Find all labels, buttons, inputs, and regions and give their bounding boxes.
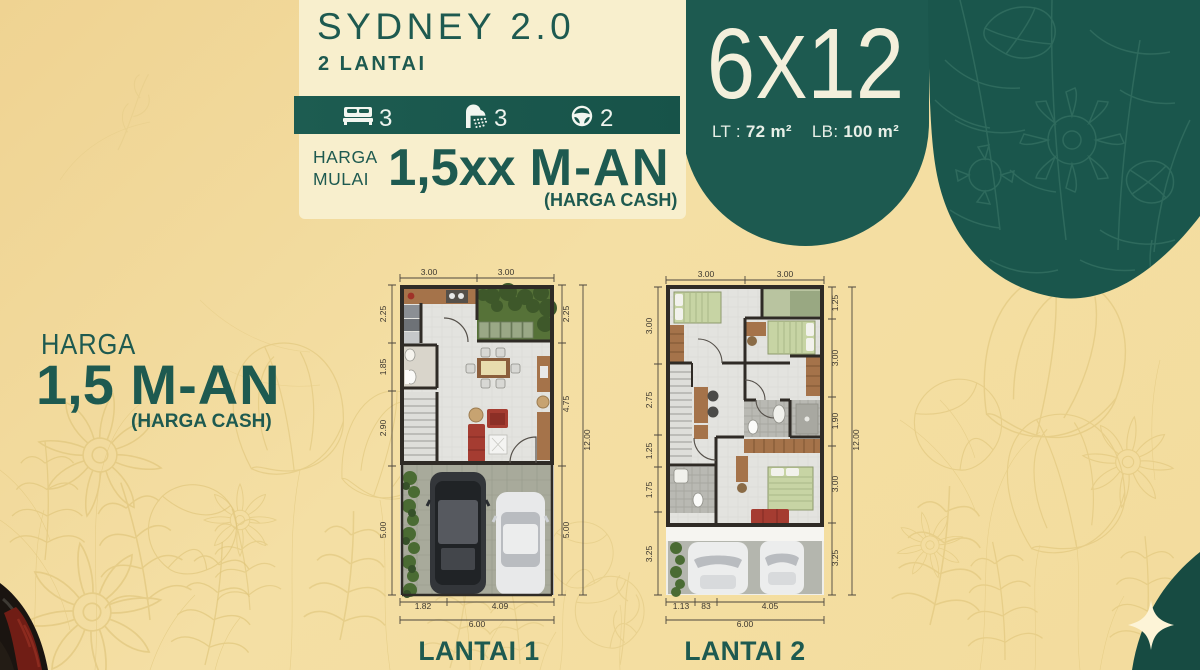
svg-text:83: 83 [701, 601, 711, 611]
svg-text:2.25: 2.25 [561, 305, 571, 322]
svg-text:5.00: 5.00 [380, 521, 388, 538]
svg-text:1.90: 1.90 [830, 412, 840, 429]
svg-text:4.09: 4.09 [492, 601, 509, 611]
svg-text:1.85: 1.85 [380, 358, 388, 375]
svg-text:2.90: 2.90 [380, 419, 388, 436]
svg-text:1.25: 1.25 [830, 294, 840, 311]
svg-text:4.05: 4.05 [762, 601, 779, 611]
svg-text:4.75: 4.75 [561, 395, 571, 412]
svg-text:1.25: 1.25 [645, 442, 654, 459]
svg-text:3.00: 3.00 [698, 269, 715, 279]
svg-text:6.00: 6.00 [737, 619, 754, 629]
svg-text:3.00: 3.00 [421, 267, 438, 277]
svg-text:3.25: 3.25 [830, 549, 840, 566]
svg-text:5.00: 5.00 [561, 521, 571, 538]
svg-text:1.82: 1.82 [415, 601, 432, 611]
svg-text:6.00: 6.00 [469, 619, 486, 629]
svg-text:1.13: 1.13 [673, 601, 690, 611]
svg-text:3.00: 3.00 [498, 267, 515, 277]
svg-text:3.00: 3.00 [830, 475, 840, 492]
svg-text:3.00: 3.00 [777, 269, 794, 279]
svg-text:3.25: 3.25 [645, 545, 654, 562]
svg-text:2.25: 2.25 [380, 305, 388, 322]
svg-text:12.00: 12.00 [582, 429, 592, 451]
svg-text:2.75: 2.75 [645, 391, 654, 408]
svg-text:3.00: 3.00 [830, 349, 840, 366]
svg-text:1.75: 1.75 [645, 481, 654, 498]
svg-text:3.00: 3.00 [645, 317, 654, 334]
svg-text:12.00: 12.00 [851, 429, 861, 451]
